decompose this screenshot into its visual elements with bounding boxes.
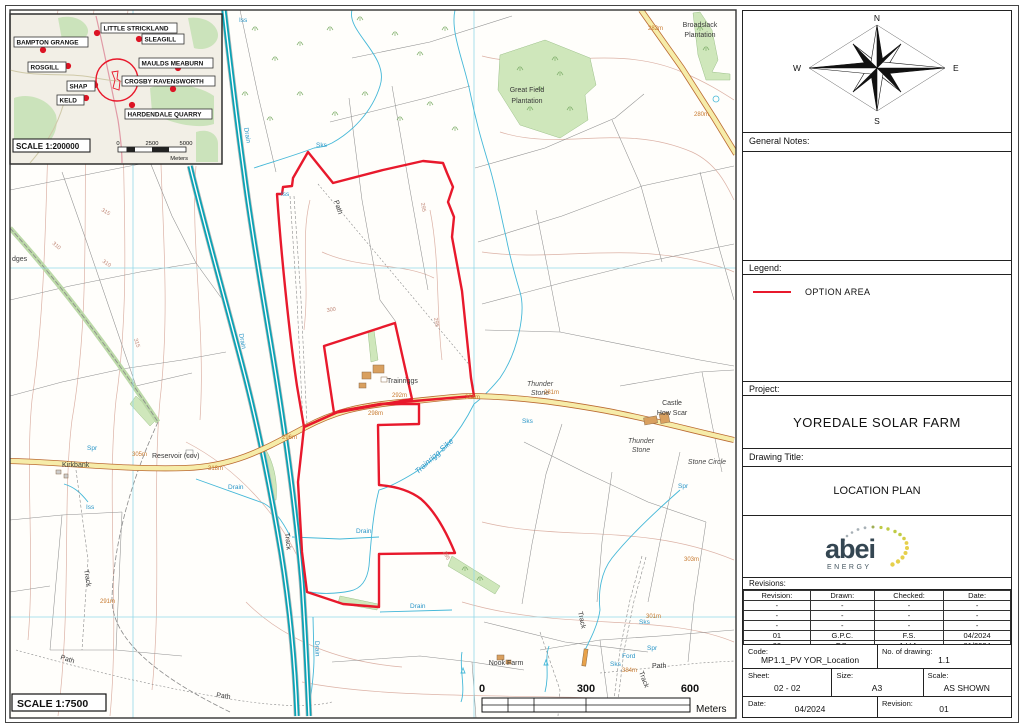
map-label: Trainriggs: [387, 378, 418, 385]
compass-south: S: [874, 116, 880, 126]
drain-label: Drain: [356, 528, 372, 535]
scale-label: Scale:: [928, 671, 949, 680]
revision-value: 01: [877, 704, 1011, 714]
code-row: Code: MP1.1_PV YOR_Location No. of drawi…: [742, 644, 1012, 669]
date-value: 04/2024: [743, 704, 877, 714]
drawing-no-value: 1.1: [877, 655, 1011, 665]
inset-place-label: KELD: [60, 98, 78, 105]
title-block: N S W E General Notes: Legend: OPTION AR…: [742, 10, 1014, 718]
legend-item-option-area: OPTION AREA: [753, 287, 870, 297]
inset-place-label: MAULDS MEABURN: [142, 61, 204, 68]
size-value: A3: [831, 683, 922, 693]
map-label: Plantation: [684, 32, 715, 39]
table-row: -- --: [744, 601, 1011, 611]
spot-height: 296m: [282, 435, 297, 441]
drawing-title-header: Drawing Title:: [742, 448, 1012, 467]
scale-value: AS SHOWN: [923, 683, 1011, 693]
water-label: Iss: [239, 17, 248, 24]
col-header-checked: Checked:: [874, 591, 943, 601]
general-notes-label: General Notes:: [743, 133, 1011, 146]
scalebar-unit: Meters: [696, 704, 727, 715]
water-label: Sks: [639, 619, 651, 626]
revisions-table: Revision: Drawn: Checked: Date: -- -- --…: [743, 590, 1011, 651]
spot-height: 318m: [208, 466, 223, 472]
spot-height: 280m: [694, 112, 709, 118]
inset-place-label: SHAP: [70, 84, 88, 91]
map-label: Thunder: [628, 438, 655, 445]
map-label: Great Field: [510, 87, 545, 94]
table-header-row: Revision: Drawn: Checked: Date:: [744, 591, 1011, 601]
inset-place-label: SLEAGILL: [145, 37, 177, 44]
compass-rose: N S W E: [743, 11, 1011, 132]
size-label: Size:: [836, 671, 853, 680]
size-cell: Size: A3: [831, 669, 923, 696]
map-label: Reservoir (cov): [152, 453, 199, 460]
main-map: Broadslack Plantation Great Field Planta…: [0, 0, 740, 728]
project-name: YOREDALE SOLAR FARM: [743, 396, 1011, 448]
water-label: Spr: [678, 483, 689, 490]
col-header-date: Date:: [944, 591, 1011, 601]
inset-place-label: LITTLE STRICKLAND: [104, 26, 169, 33]
spot-height: 303m: [684, 557, 699, 563]
sheet-cell: Sheet: 02 - 02: [743, 669, 832, 696]
general-notes-area: [742, 151, 1012, 261]
legend-header: Legend:: [742, 260, 1012, 275]
map-label: Thunder: [527, 381, 554, 388]
inset-map: LITTLE STRICKLAND SLEAGILL BAMPTON GRANG…: [10, 14, 222, 164]
scale-cell: Scale: AS SHOWN: [923, 669, 1011, 696]
inset-scalebar-unit: Meters: [170, 156, 188, 162]
inset-scalebar-tick: 0: [116, 141, 119, 147]
scalebar-tick: 300: [577, 683, 595, 695]
compass-west: W: [793, 63, 801, 73]
drain-label: Drain: [410, 603, 426, 610]
table-row: -- --: [744, 611, 1011, 621]
inset-place-label: CROSBY RAVENSWORTH: [125, 79, 205, 86]
drawing-sheet: Broadslack Plantation Great Field Planta…: [0, 0, 1024, 728]
spot-height: 305m: [132, 452, 147, 458]
code-value: MP1.1_PV YOR_Location: [743, 655, 877, 665]
project-label: Project:: [743, 382, 1011, 394]
project-header: Project:: [742, 381, 1012, 396]
water-label: Sks: [522, 418, 534, 425]
water-label: Spr: [87, 445, 98, 452]
water-label: Sks: [316, 142, 328, 149]
spot-height: 384m: [622, 668, 637, 674]
map-scale-label: SCALE 1:7500: [17, 698, 88, 710]
drawing-title-label: Drawing Title:: [743, 449, 1011, 462]
date-cell: Date: 04/2024: [743, 697, 878, 717]
map-label: Nook Farm: [489, 660, 524, 667]
col-header-revision: Revision:: [744, 591, 811, 601]
map-label: Kirkbank: [62, 462, 90, 469]
inset-scalebar-tick: 2500: [146, 141, 159, 147]
map-label: dges: [12, 256, 28, 263]
sheet-size-scale-row: Sheet: 02 - 02 Size: A3 Scale: AS SHOWN: [742, 668, 1012, 697]
inset-scale-label: SCALE 1:200000: [16, 142, 80, 151]
legend-area: OPTION AREA: [742, 274, 1012, 382]
drain-label: Drain: [228, 484, 244, 491]
spot-height: 282m: [648, 26, 663, 32]
date-revision-row: Date: 04/2024 Revision: 01: [742, 696, 1012, 718]
logo-area: abei ENERGY: [742, 515, 1012, 578]
compass-section: N S W E: [742, 10, 1012, 133]
col-header-drawn: Drawn:: [810, 591, 874, 601]
drawing-title: LOCATION PLAN: [743, 467, 1011, 515]
map-label: Stone Circle: [688, 459, 726, 466]
compass-north: N: [874, 13, 880, 23]
map-label: How Scar: [657, 410, 688, 417]
map-label: Stone: [632, 447, 650, 454]
water-label: Iss: [281, 191, 290, 198]
sheet-label: Sheet:: [748, 671, 770, 680]
inset-place-label: ROSGILL: [31, 65, 59, 72]
table-row: 01G.P.C. F.S.04/2024: [744, 631, 1011, 641]
project-name-area: YOREDALE SOLAR FARM: [742, 395, 1012, 449]
logo-wordmark: abei: [825, 534, 875, 564]
drain-label: Drain: [313, 641, 321, 657]
spot-height: 281m: [544, 390, 559, 396]
code-cell: Code: MP1.1_PV YOR_Location: [743, 645, 878, 668]
revisions-label: Revisions:: [743, 578, 1011, 588]
spot-height: 292m: [392, 393, 407, 399]
map-label: Plantation: [511, 98, 542, 105]
map-label: Broadslack: [683, 22, 718, 29]
sheet-value: 02 - 02: [743, 683, 831, 693]
abei-energy-logo: abei ENERGY: [743, 516, 1011, 577]
drawing-no-cell: No. of drawing: 1.1: [877, 645, 1011, 668]
drawing-title-area: LOCATION PLAN: [742, 466, 1012, 516]
water-label: Sks: [610, 661, 622, 668]
water-label: Spr: [647, 645, 658, 652]
water-label: Ford: [622, 653, 636, 660]
logo-subtitle: ENERGY: [827, 564, 872, 571]
path-label: Path: [652, 663, 667, 670]
inset-place-label: BAMPTON GRANGE: [17, 40, 80, 47]
legend-label: Legend:: [743, 261, 1011, 273]
option-area-line-swatch: [753, 291, 791, 293]
table-row: -- --: [744, 621, 1011, 631]
spot-height: 301m: [646, 614, 661, 620]
spot-height: 298m: [368, 411, 383, 417]
scalebar-tick: 600: [681, 683, 699, 695]
spot-height: 291m: [100, 599, 115, 605]
general-notes-header: General Notes:: [742, 132, 1012, 152]
scalebar-tick: 0: [479, 683, 485, 695]
map-label: Castle: [662, 400, 682, 407]
inset-scalebar-tick: 5000: [180, 141, 193, 147]
inset-place-label: HARDENDALE QUARRY: [128, 112, 203, 119]
compass-east: E: [953, 63, 959, 73]
revision-cell: Revision: 01: [877, 697, 1011, 717]
revisions-table-area: Revision: Drawn: Checked: Date: -- -- --…: [742, 589, 1012, 645]
water-label: Iss: [86, 504, 95, 511]
legend-item-label: OPTION AREA: [805, 287, 870, 297]
spot-height: 284m: [465, 395, 480, 401]
